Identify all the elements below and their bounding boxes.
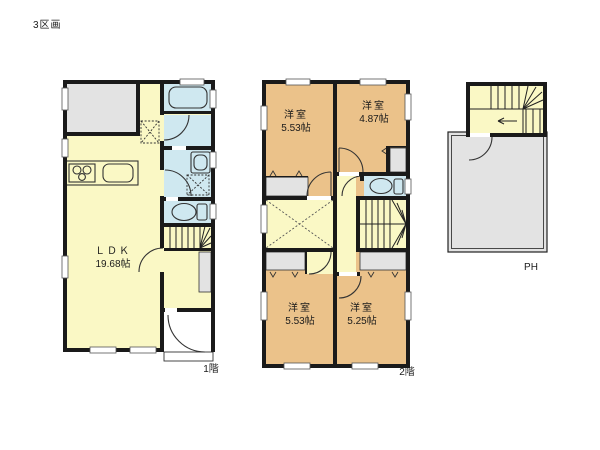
closet bbox=[266, 252, 305, 270]
roof-balcony-area bbox=[448, 132, 547, 252]
room-label-ldk: ＬＤＫ 19.68帖 bbox=[83, 245, 143, 271]
floor2-label: 2階 bbox=[392, 366, 422, 379]
floor1-label: 1階 bbox=[196, 363, 226, 376]
gray-room-area bbox=[66, 83, 136, 132]
room-label-2f-top-left: 洋室 5.53帖 bbox=[266, 109, 326, 135]
closet bbox=[390, 148, 406, 172]
room-label-2f-bottom-right: 洋室 5.25帖 bbox=[332, 302, 392, 328]
porch-step bbox=[164, 352, 213, 361]
room-size: 4.87帖 bbox=[359, 113, 388, 126]
entrance-area bbox=[164, 312, 211, 352]
floorplan-drawing bbox=[0, 0, 600, 450]
room-size: 5.53帖 bbox=[281, 122, 310, 135]
floorplan-canvas: 3区画 ＬＤＫ 19.68帖 洋室 5.53帖 洋室 4.87帖 洋室 5.53… bbox=[0, 0, 600, 450]
room-name: 洋室 bbox=[362, 100, 386, 113]
room-name: 洋室 bbox=[288, 302, 312, 315]
penthouse-plan bbox=[448, 82, 547, 252]
hall-area bbox=[337, 176, 356, 276]
closet bbox=[360, 252, 406, 270]
room-name: 洋室 bbox=[350, 302, 374, 315]
closet bbox=[266, 177, 308, 196]
room-name: ＬＤＫ bbox=[95, 245, 131, 258]
hall-closet bbox=[199, 252, 211, 292]
room-label-2f-top-right: 洋室 4.87帖 bbox=[344, 100, 404, 126]
floor1-plan bbox=[62, 79, 216, 361]
plot-number-label: 3区画 bbox=[33, 19, 62, 32]
room-size: 5.53帖 bbox=[285, 315, 314, 328]
room-size: 5.25帖 bbox=[347, 315, 376, 328]
room-name: 洋室 bbox=[284, 109, 308, 122]
penthouse-label: PH bbox=[517, 261, 545, 274]
changing-room-area bbox=[164, 115, 211, 146]
room-label-2f-bottom-left: 洋室 5.53帖 bbox=[270, 302, 330, 328]
room-size: 19.68帖 bbox=[95, 258, 130, 271]
